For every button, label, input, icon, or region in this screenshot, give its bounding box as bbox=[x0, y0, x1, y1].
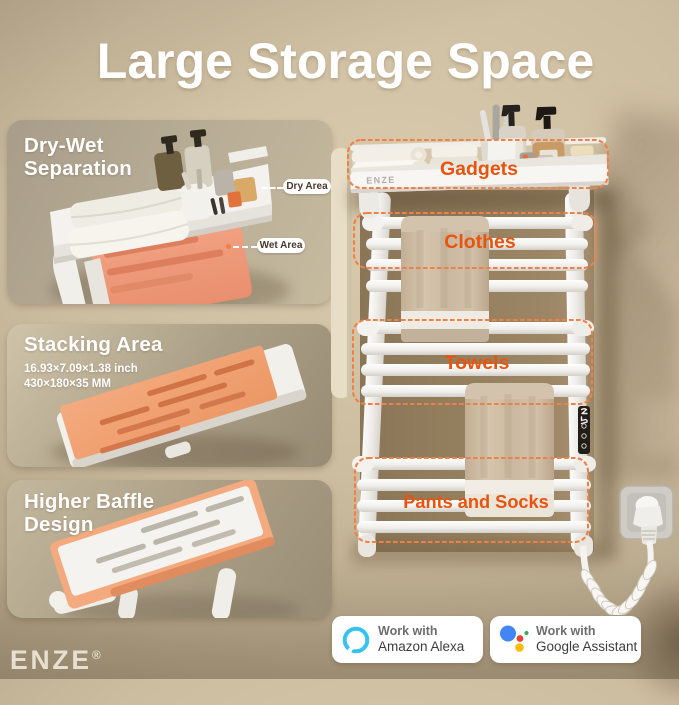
svg-text:Towels: Towels bbox=[445, 352, 510, 374]
svg-text:ENZE: ENZE bbox=[366, 175, 396, 186]
svg-text:Pants and Socks: Pants and Socks bbox=[403, 492, 549, 512]
svg-text:Gadgets: Gadgets bbox=[440, 158, 518, 180]
svg-text:Clothes: Clothes bbox=[444, 231, 516, 253]
